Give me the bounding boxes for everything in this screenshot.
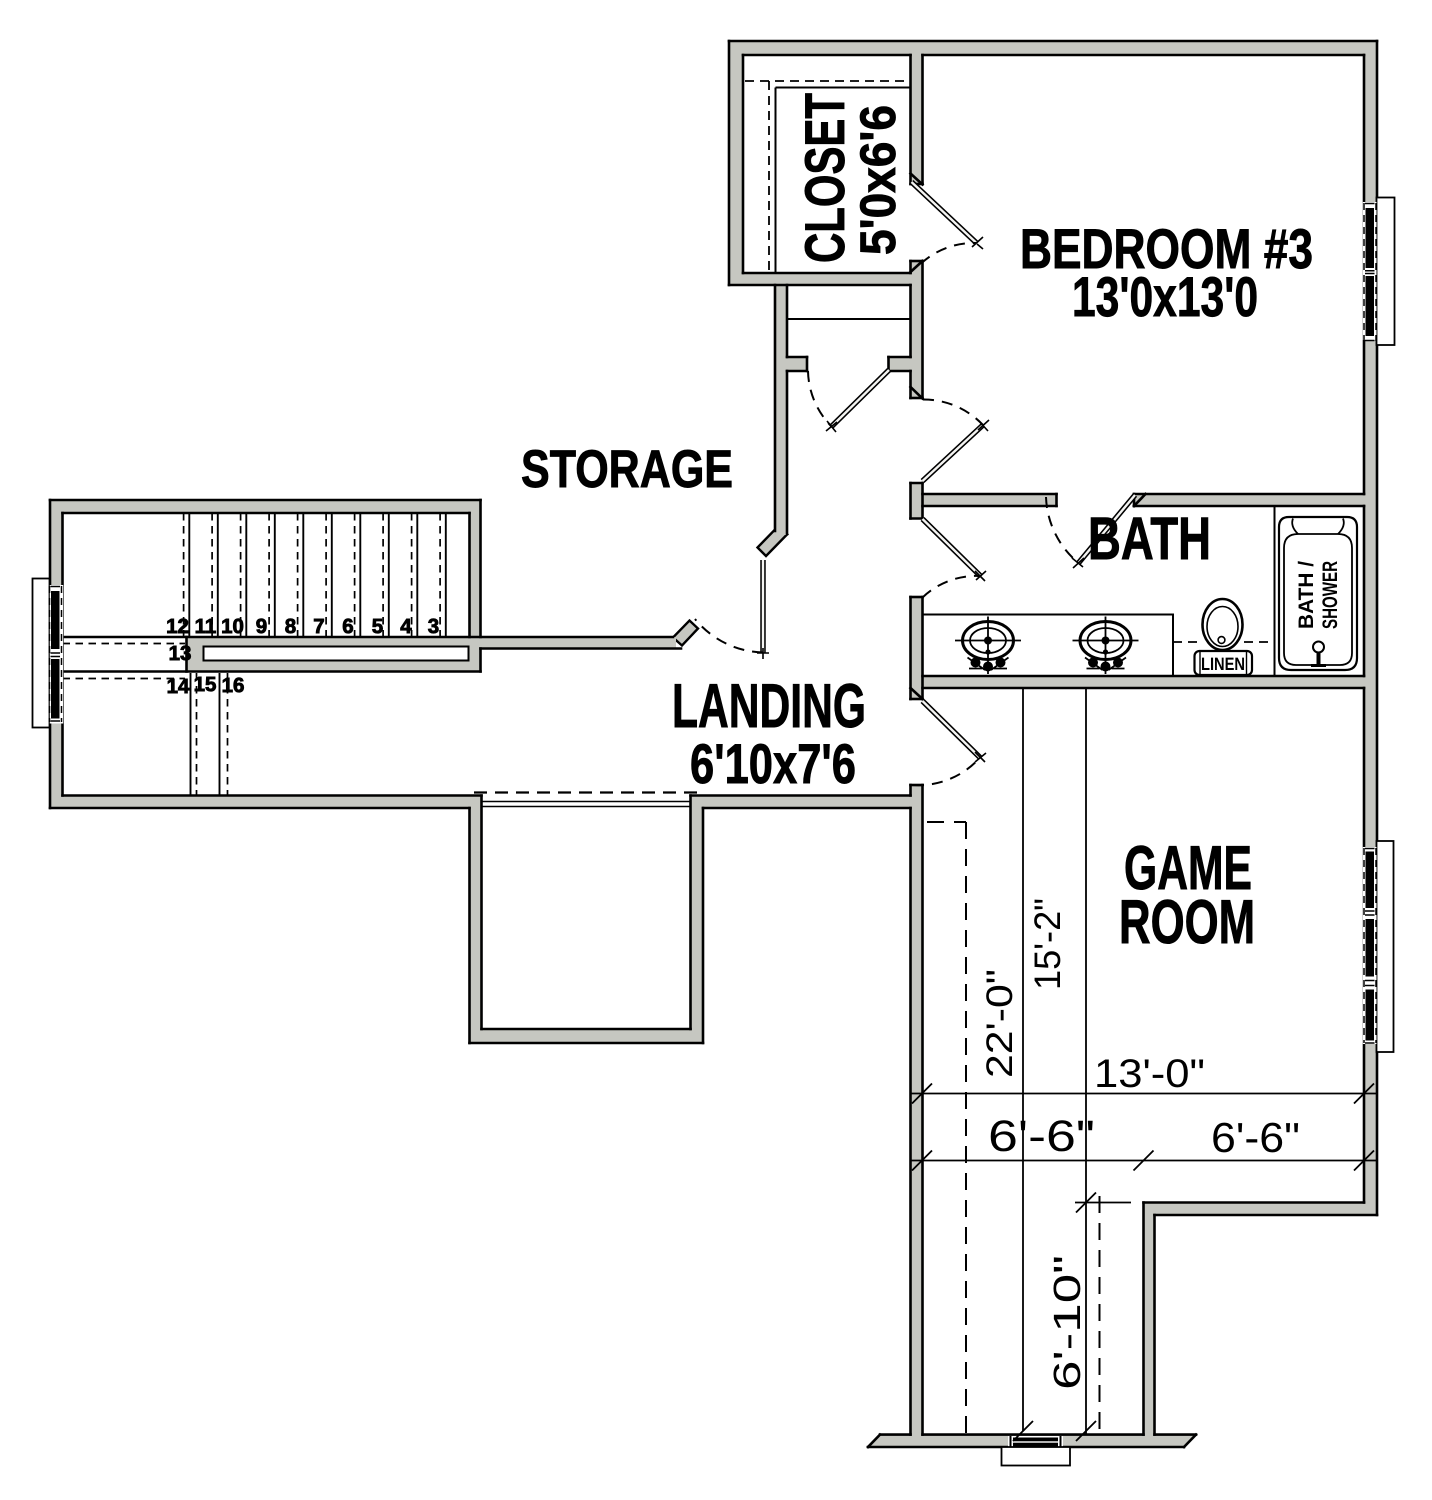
svg-text:9: 9 [256,615,267,638]
svg-text:13: 13 [169,642,192,665]
svg-text:BATH /: BATH / [1295,561,1318,629]
svg-text:6: 6 [342,615,353,638]
svg-text:3: 3 [428,615,439,638]
svg-text:13'-0": 13'-0" [1094,1052,1205,1096]
svg-text:8: 8 [285,615,296,638]
svg-text:6'-6": 6'-6" [1211,1114,1300,1161]
svg-text:12: 12 [166,615,189,638]
svg-text:13'0x13'0: 13'0x13'0 [1072,265,1258,328]
svg-text:ROOM: ROOM [1119,888,1255,957]
svg-text:6'-6": 6'-6" [988,1112,1095,1161]
svg-text:6'-10": 6'-10" [1047,1255,1089,1390]
svg-text:LINEN: LINEN [1201,654,1245,674]
svg-text:16: 16 [222,674,245,697]
svg-text:LANDING: LANDING [672,672,866,741]
svg-text:15: 15 [194,673,217,696]
svg-text:CLOSET: CLOSET [793,93,856,263]
svg-text:5'0x6'6: 5'0x6'6 [850,105,906,255]
svg-text:4: 4 [400,615,412,638]
svg-text:6'10x7'6: 6'10x7'6 [690,732,856,795]
svg-text:SHOWER: SHOWER [1319,561,1342,629]
svg-text:22'-0": 22'-0" [979,969,1020,1078]
svg-text:15'-2": 15'-2" [1027,898,1068,990]
svg-text:7: 7 [313,615,324,638]
svg-text:STORAGE: STORAGE [521,440,733,499]
svg-text:14: 14 [167,675,190,698]
svg-text:11: 11 [195,615,217,638]
svg-text:5: 5 [372,615,383,638]
svg-text:BATH: BATH [1088,505,1211,572]
svg-text:10: 10 [221,615,244,638]
